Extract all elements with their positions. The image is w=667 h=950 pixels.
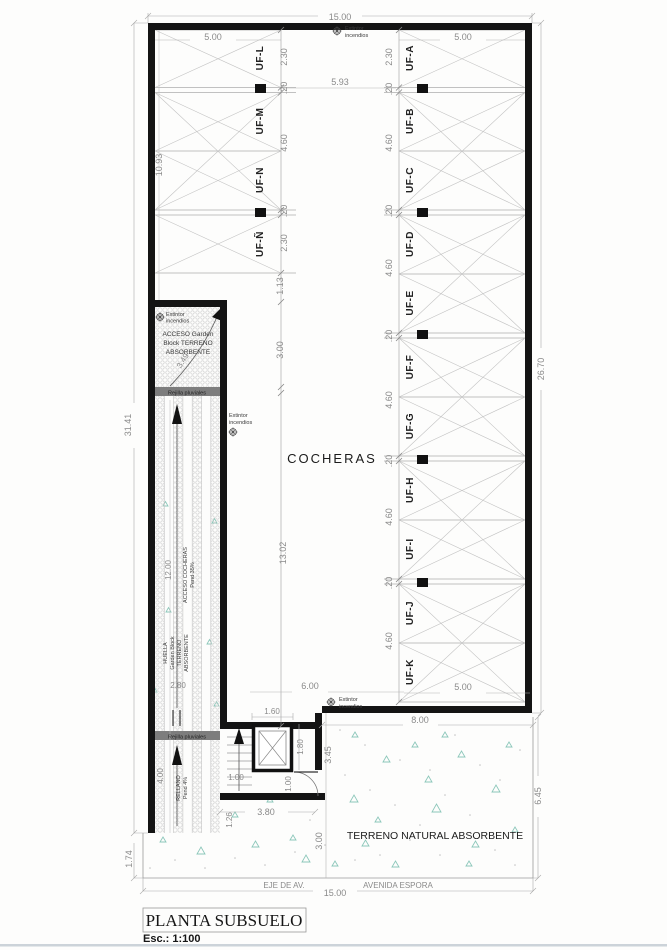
stall-label-uf-i: UF-I (405, 538, 416, 559)
extintor-label: Extintor (166, 312, 185, 318)
floor-plan-svg: TERRENO NATURAL ABSORBENTE Rejilla pluvi… (0, 0, 667, 950)
rejilla-label-lower: Rejilla pluviales (168, 735, 206, 741)
pend-4-label: Pend 4% (183, 777, 189, 799)
title-block: PLANTA SUBSUELO Esc.: 1:100 (143, 908, 306, 945)
column-square (417, 330, 428, 339)
svg-text:1.13: 1.13 (275, 277, 285, 295)
column-square (417, 578, 428, 587)
dim-rellano-length: 4.00 (156, 768, 165, 784)
svg-text:13.02: 13.02 (278, 542, 288, 565)
dim-left-total: 31.41 (123, 414, 133, 437)
wall-acceso-top (148, 300, 227, 307)
extintor-label: incendios (339, 704, 362, 710)
dim-ramp-length: 12.00 (164, 559, 173, 580)
dim-line-bottom-inner (250, 692, 530, 693)
dim-elev-width: 1.60 (264, 707, 280, 716)
stall-label-uf-n: UF-N (255, 167, 266, 193)
cocheras-label: COCHERAS (287, 451, 377, 466)
svg-text:4.60: 4.60 (384, 134, 394, 152)
stall-label-uf-j: UF-J (405, 601, 416, 625)
dim-vest-width: 3.80 (257, 807, 275, 817)
ramp-stripes (155, 393, 220, 833)
svg-text:2.30: 2.30 (279, 234, 289, 252)
parking-left: UF-L UF-M UF-N UF-Ñ (155, 30, 296, 273)
stall-label-uf-a: UF-A (405, 45, 416, 71)
avenida-espora-label: AVENIDA ESPORA (363, 881, 433, 890)
svg-text:4.60: 4.60 (384, 259, 394, 277)
extintor-label: Extintor (339, 697, 358, 703)
stall-label-uf-e: UF-E (405, 290, 416, 315)
wall-stair-right-upper (315, 713, 322, 770)
dim-stair-width: 1.00 (228, 773, 244, 782)
acceso-cocheras-label: ACCESO COCHERAS (183, 547, 189, 603)
wall-right (525, 23, 532, 713)
rellano-label: RELLANO (176, 774, 182, 800)
dim-aisle: 5.93 (331, 77, 349, 87)
dim-right-total: 26.70 (536, 358, 546, 381)
svg-text:Block TERRENO: Block TERRENO (163, 340, 212, 347)
stall-label-uf-g: UF-G (405, 413, 416, 439)
extintor-label: incendios (345, 33, 368, 39)
dim-stall-bottom: 5.00 (454, 682, 472, 692)
plan-title: PLANTA SUBSUELO (146, 911, 303, 930)
stall-label-uf-b: UF-B (405, 108, 416, 134)
parking-right: UF-A UF-B UF-C UF-D UF-E UF-F UF-G UF-H … (384, 30, 525, 702)
svg-text:.20: .20 (384, 577, 394, 590)
plan-scale: Esc.: 1:100 (143, 933, 200, 945)
drawing-sheet: TERRENO NATURAL ABSORBENTE Rejilla pluvi… (0, 0, 667, 950)
svg-text:3.00: 3.00 (275, 341, 285, 359)
stall-label-uf-d: UF-D (405, 231, 416, 257)
extintor-label: incendios (166, 319, 189, 325)
stall-lines-left (155, 30, 296, 273)
stair-arrow-up-icon (234, 728, 244, 744)
stall-label-uf-c: UF-C (405, 167, 416, 193)
dim-patio: 3.45 (323, 746, 333, 764)
stall-label-uf-m: UF-M (255, 108, 266, 135)
svg-text:4.60: 4.60 (384, 632, 394, 650)
walls (148, 23, 532, 833)
svg-text:.20: .20 (279, 82, 289, 95)
ramp: Rejilla pluviales Rejilla pluviales 3.49… (155, 307, 222, 833)
extintor-label: Extintor (345, 26, 364, 32)
column-square (417, 84, 428, 93)
dim-top-total: 15.00 (329, 12, 352, 22)
stall-label-uf-f: UF-F (405, 355, 416, 380)
extintor-markers: Extintor incendios Extintor incendios Ex… (228, 26, 368, 710)
dim-stall-top-right: 5.00 (454, 32, 472, 42)
eje-av-label: EJE DE AV. (263, 881, 304, 890)
svg-text:4.60: 4.60 (384, 508, 394, 526)
huella-label: Garden Block (170, 636, 176, 670)
extintor-icon (228, 427, 237, 436)
page-bottom-divider (0, 944, 667, 947)
column-square (255, 84, 266, 93)
column-square (417, 455, 428, 464)
dim-ramp-width: 2.80 (170, 681, 186, 690)
dim-six: 6.00 (301, 681, 319, 691)
svg-text:.20: .20 (384, 455, 394, 468)
svg-text:2.30: 2.30 (279, 48, 289, 66)
column-square (255, 208, 266, 217)
svg-text:ABSORBENTE: ABSORBENTE (166, 349, 211, 356)
dim-stall-top-left: 5.00 (204, 32, 222, 42)
rejilla-label-upper: Rejilla pluviales (168, 391, 206, 397)
dim-chain-left-texts: 2.30 .20 4.60 .20 2.30 1.13 3.00 13.02 (275, 48, 289, 564)
door-swing-arc (294, 772, 318, 796)
extintor-label: incendios (229, 420, 252, 426)
dim-eight: 8.00 (411, 715, 429, 725)
svg-text:.20: .20 (384, 205, 394, 218)
stall-label-uf-l: UF-L (255, 46, 266, 71)
huella-label: HUELLA (163, 642, 169, 664)
dim-line-left-outer (131, 20, 148, 881)
wall-ramp-right (220, 300, 227, 728)
pend-35-label: Pend 35% (190, 562, 196, 587)
dim-door-width: 1.00 (284, 776, 293, 792)
acceso-box-labels: ACCESO Garden Block TERRENO ABSORBENTE (163, 331, 214, 356)
svg-text:.20: .20 (384, 330, 394, 343)
svg-text:4.60: 4.60 (279, 134, 289, 152)
stall-label-uf-h: UF-H (405, 477, 416, 503)
dim-vest-below: 1.26 (225, 812, 234, 828)
stair-core (227, 726, 318, 797)
extintor-label: Extintor (229, 413, 248, 419)
svg-text:.20: .20 (279, 205, 289, 218)
svg-text:ACCESO Garden: ACCESO Garden (163, 331, 214, 338)
dim-left-col: 10.93 (154, 154, 164, 177)
column-square (417, 208, 428, 217)
wall-stair-bottom (220, 793, 325, 800)
dim-bottom-total: 15.00 (324, 888, 347, 898)
huella-label: ABSORBENTE (184, 634, 190, 672)
dim-terr: 3.00 (314, 832, 324, 850)
svg-text:2.30: 2.30 (384, 48, 394, 66)
stall-label-uf-k: UF-K (405, 659, 416, 685)
stall-diagonals-right (399, 30, 525, 702)
huella-label: TERRENO (177, 639, 183, 667)
svg-text:.20: .20 (384, 83, 394, 96)
extintor-icon (326, 697, 335, 706)
dim-left-bottom: 1.74 (124, 850, 134, 868)
stall-label-uf-nn: UF-Ñ (253, 231, 266, 257)
terreno-natural-label: TERRENO NATURAL ABSORBENTE (347, 830, 523, 842)
svg-text:4.60: 4.60 (384, 391, 394, 409)
dim-right-bottom: 6.45 (533, 787, 543, 805)
dim-chain-right-texts: 2.30 .20 4.60 .20 4.60 .20 4.60 .20 4.60… (384, 48, 394, 650)
wall-left (148, 23, 155, 833)
dim-elev-depth: 1.80 (296, 739, 305, 755)
terrain-dots (149, 729, 521, 869)
